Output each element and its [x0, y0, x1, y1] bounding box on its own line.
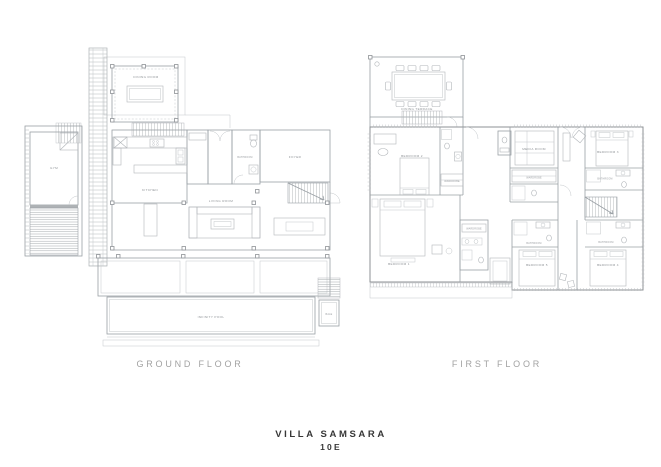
first-floor-caption: FIRST FLOOR	[452, 359, 542, 369]
bedroom-5-bathroom: BATHROOM	[514, 222, 551, 245]
bedroom-1: BEDROOM 1	[372, 199, 452, 266]
lounge-mat	[274, 218, 325, 235]
kitchen-counters	[113, 137, 187, 173]
ground-floor-plan: DINING ROOM GYM	[25, 48, 340, 369]
entry-steps	[132, 123, 184, 136]
label-bedroom-5: BEDROOM 5	[526, 263, 548, 267]
dining-table	[127, 86, 163, 102]
label-bedroom-1: BEDROOM 1	[388, 262, 410, 266]
terrace-steps	[402, 111, 442, 124]
plan-drawing: DINING ROOM GYM	[0, 0, 661, 467]
jacuzzi	[490, 258, 510, 284]
unit-label: 10E	[320, 442, 342, 452]
balcony	[370, 283, 512, 298]
dining-terrace: DINING TERRACE	[369, 56, 465, 128]
main-rooms: KITCHEN BATHROOM FOYER	[112, 130, 340, 203]
gym-door-arc	[69, 196, 78, 205]
label-dining-terrace: DINING TERRACE	[401, 107, 432, 111]
label-bathroom-4: BATHROOM	[598, 241, 613, 244]
label-kitchen: KITCHEN	[142, 188, 158, 192]
label-foyer: FOYER	[289, 155, 302, 159]
villa-title: VILLA SAMSARA	[275, 429, 387, 440]
entry-door-arc	[330, 193, 340, 203]
bedroom-4-bathroom: BATHROOM	[587, 222, 631, 244]
roof-outline	[104, 57, 230, 128]
label-infinity-pool: INFINITY POOL	[198, 315, 225, 319]
pantry-shelf	[189, 133, 206, 140]
floor-plan-sheet: DINING ROOM GYM	[0, 0, 661, 467]
entry-hall	[208, 130, 232, 184]
bale-pavilion: BALE	[318, 278, 340, 326]
kitchen-room	[112, 130, 187, 203]
ground-floor-caption: GROUND FLOOR	[136, 359, 243, 369]
bedroom-3: BEDROOM 3	[573, 130, 633, 166]
gym-terrace-deck	[30, 208, 78, 255]
pool-terrace: INFINITY POOL BALE	[97, 255, 341, 347]
label-bathroom-5: BATHROOM	[526, 242, 541, 245]
label-ground-bathroom: BATHROOM	[237, 156, 252, 159]
label-media-room: MEDIA ROOM	[522, 147, 546, 151]
label-bathroom-3: BATHROOM	[597, 178, 612, 181]
dining-room-terrace: DINING ROOM	[111, 65, 185, 137]
label-wardrobe-1: WARDROBE	[466, 228, 482, 231]
bedroom-2-bathroom: WARDROBE	[441, 130, 463, 187]
label-living-room: LIVING ROOM	[209, 199, 234, 203]
main-staircase	[288, 183, 328, 203]
label-bale: BALE	[326, 313, 333, 316]
label-dining-room: DINING ROOM	[133, 75, 158, 79]
terrace-dining-table	[386, 66, 452, 107]
bedroom-2: BEDROOM 2	[374, 134, 429, 195]
gym-wing: GYM	[25, 123, 82, 256]
upper-hall	[466, 127, 511, 155]
bedroom-5: BEDROOM 5	[519, 250, 555, 286]
label-bedroom-4: BEDROOM 4	[597, 263, 619, 267]
sofa-set	[189, 207, 260, 238]
terrace-door-arc	[447, 117, 457, 127]
first-floor-plan: DINING TERRACE	[368, 56, 645, 370]
infinity-edge	[103, 337, 319, 346]
bedroom-3-bathroom: BATHROOM	[587, 170, 631, 188]
label-wardrobe-2: WARDROBE	[444, 180, 460, 183]
media-room: MEDIA ROOM WARDROBE	[512, 131, 556, 200]
bathroom-fixtures	[234, 135, 258, 184]
hall-double-doors	[210, 131, 230, 141]
sheet-title-block: VILLA SAMSARA 10E	[275, 429, 387, 452]
bedroom-4: BEDROOM 4	[590, 250, 626, 286]
label-bedroom-3: BEDROOM 3	[597, 150, 619, 154]
pantry-room	[187, 130, 208, 184]
entry-ramp-stair	[89, 48, 107, 266]
daybed	[144, 204, 157, 236]
stairwell	[585, 197, 617, 217]
pool-deck	[98, 258, 330, 296]
bedroom-1-bathroom: WARDROBE	[460, 220, 488, 270]
label-bedroom-2: BEDROOM 2	[401, 154, 423, 158]
label-wardrobe-media: WARDROBE	[526, 177, 542, 180]
label-gym: GYM	[50, 166, 58, 170]
